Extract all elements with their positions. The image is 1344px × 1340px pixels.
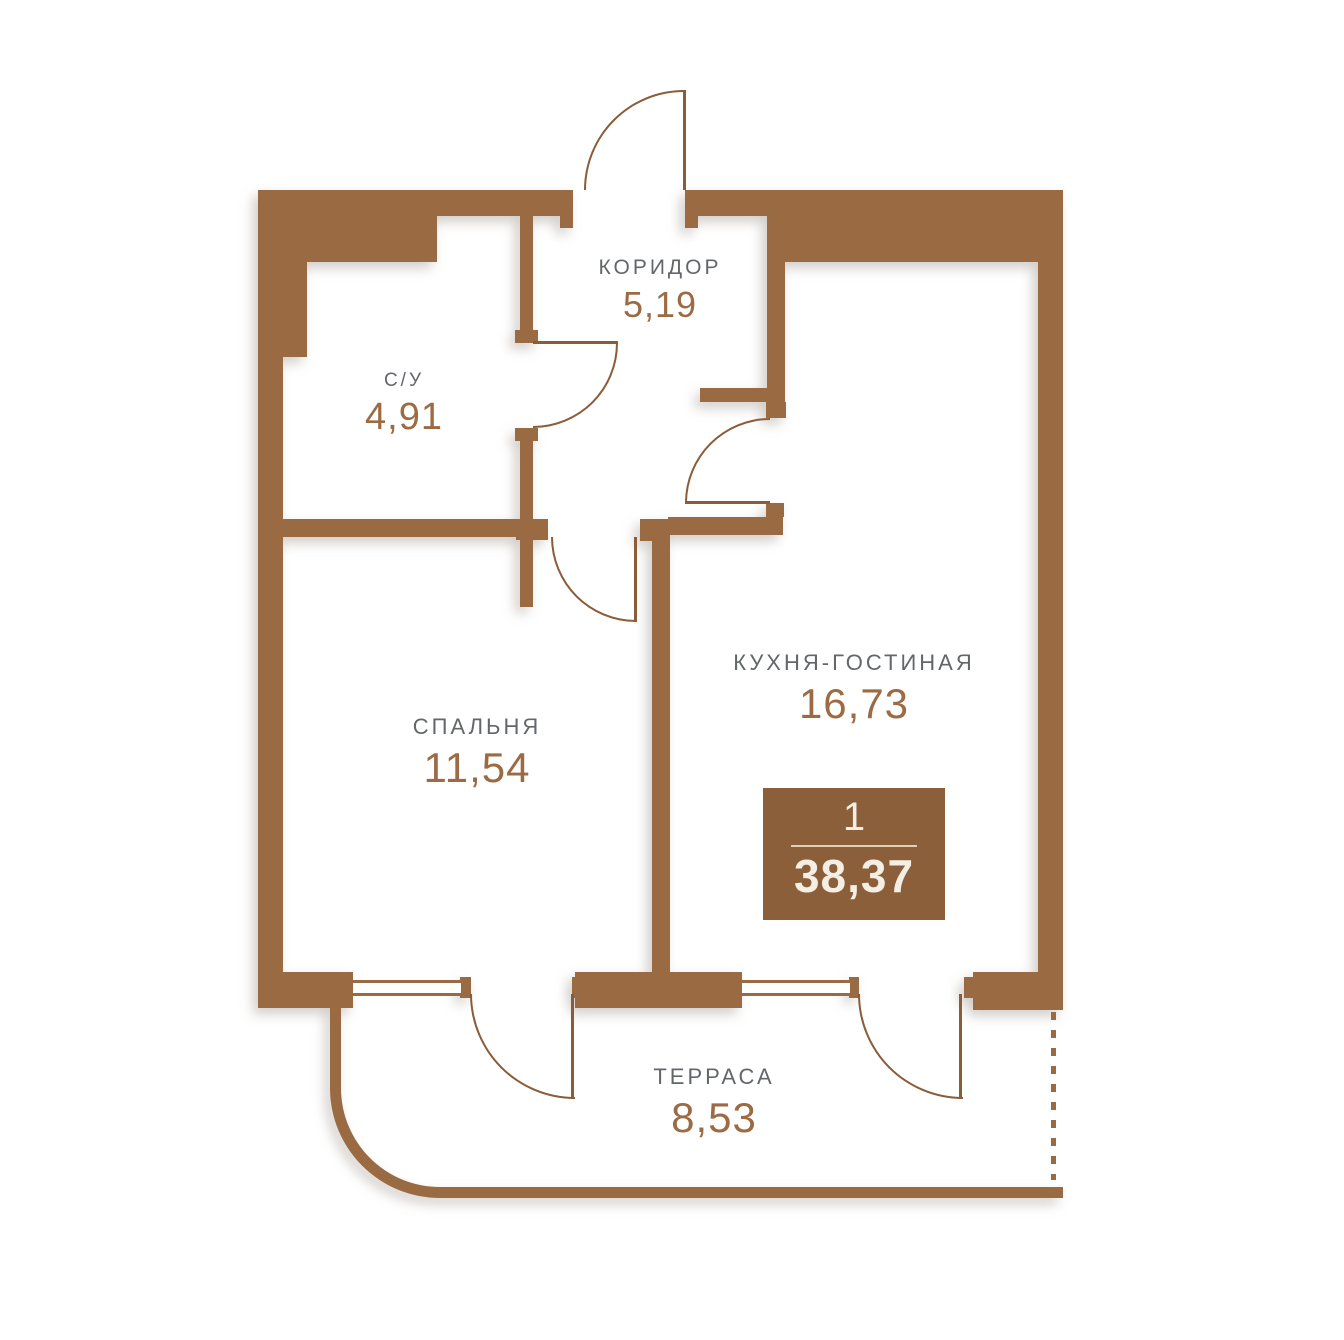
area-badge: 1 38,37 xyxy=(763,788,945,920)
room-area: 4,91 xyxy=(365,396,443,439)
floor-plan: КОРИДОР 5,19 С/У 4,91 СПАЛЬНЯ 11,54 КУХН… xyxy=(0,0,1344,1340)
room-label-kitchen-living: КУХНЯ-ГОСТИНАЯ 16,73 xyxy=(733,650,974,728)
bathroom-door-leaf xyxy=(533,341,618,344)
badge-total-area: 38,37 xyxy=(763,851,945,901)
terrace-dashed-edge xyxy=(1051,1012,1056,1180)
room-area: 5,19 xyxy=(599,284,722,326)
room-name: ТЕРРАСА xyxy=(653,1064,774,1090)
bedroom-door-leaf xyxy=(634,537,637,622)
room-label-bathroom: С/У 4,91 xyxy=(365,370,443,439)
entrance-door-leaf xyxy=(683,90,686,190)
kitchen-terrace-door-arc xyxy=(858,994,963,1099)
room-name: КУХНЯ-ГОСТИНАЯ xyxy=(733,650,974,676)
room-label-bedroom: СПАЛЬНЯ 11,54 xyxy=(413,714,542,792)
room-label-terrace: ТЕРРАСА 8,53 xyxy=(653,1064,774,1142)
bedroom-terrace-door-leaf xyxy=(571,994,574,1099)
room-name: КОРИДОР xyxy=(599,256,722,280)
room-area: 11,54 xyxy=(413,744,542,792)
bedroom-door-arc xyxy=(551,537,636,622)
window-kitchen xyxy=(742,980,850,996)
room-name: С/У xyxy=(365,370,443,392)
room-area: 16,73 xyxy=(733,680,974,728)
room-area: 8,53 xyxy=(653,1094,774,1142)
corridor-kitchen-door-leaf xyxy=(685,501,770,504)
bedroom-terrace-door-arc xyxy=(470,994,575,1099)
window-bedroom xyxy=(353,980,461,996)
room-name: СПАЛЬНЯ xyxy=(413,714,542,740)
kitchen-terrace-door-leaf xyxy=(959,994,962,1099)
badge-divider xyxy=(791,845,917,847)
badge-rooms-count: 1 xyxy=(763,794,945,840)
bathroom-door-arc xyxy=(533,343,618,428)
entrance-door-arc xyxy=(584,90,684,190)
room-label-corridor: КОРИДОР 5,19 xyxy=(599,256,722,326)
corridor-kitchen-door-arc xyxy=(685,418,770,503)
